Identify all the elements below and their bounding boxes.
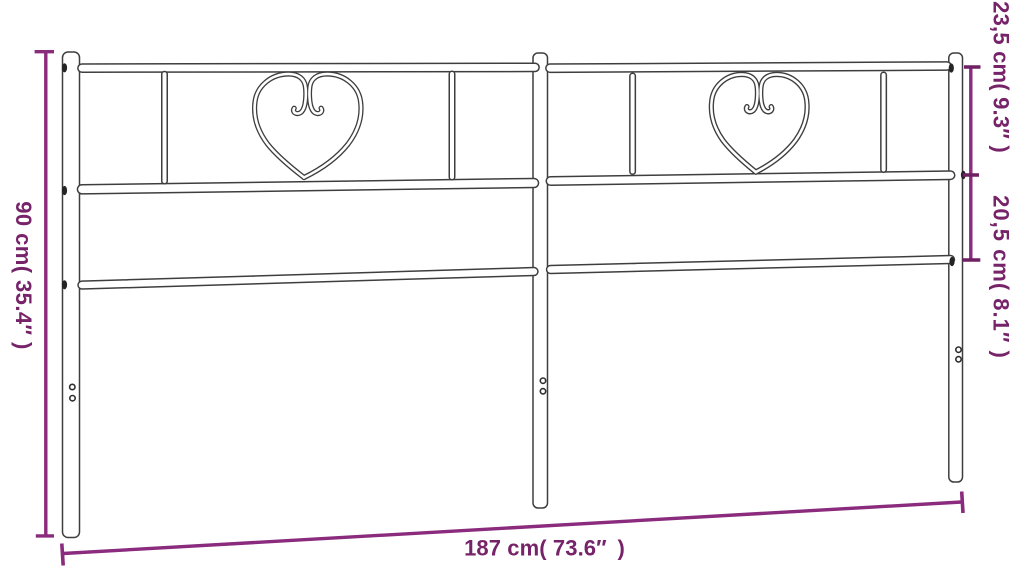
svg-text:20,5 cm( 8.1″ ): 20,5 cm( 8.1″ )	[989, 195, 1014, 359]
svg-text:187 cm( 73.6″ ): 187 cm( 73.6″ )	[464, 536, 625, 561]
svg-text:23,5 cm( 9.3″ ): 23,5 cm( 9.3″ )	[989, 1, 1014, 153]
svg-text:90 cm( 35.4″ ): 90 cm( 35.4″ )	[11, 201, 36, 350]
